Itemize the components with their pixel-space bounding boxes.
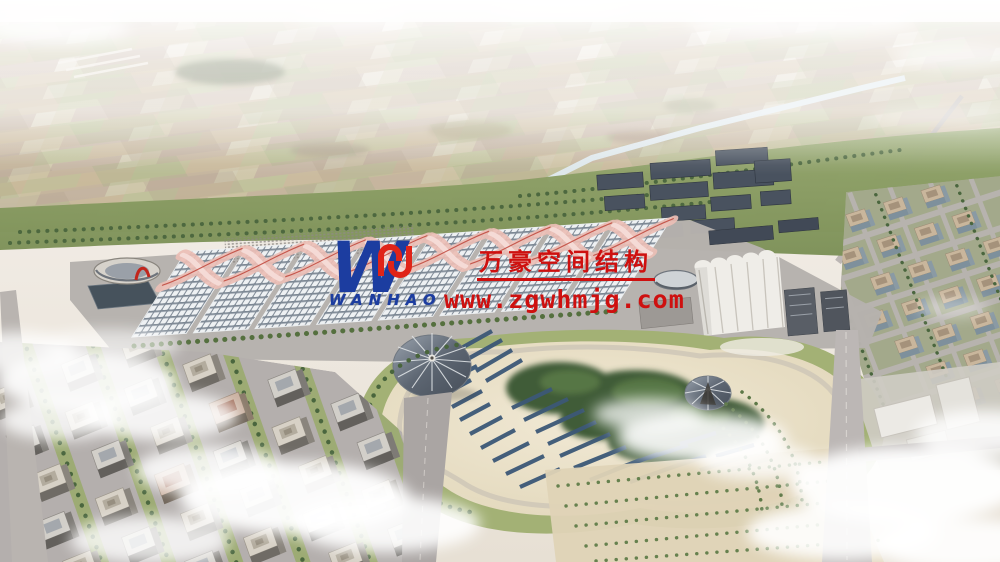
haze-band <box>0 55 1000 165</box>
service-shed <box>639 297 693 328</box>
scene-canvas <box>0 0 1000 562</box>
aerial-rendering: W WANHAO 万豪空间结构 www.zgwhmjg.com <box>0 0 1000 562</box>
